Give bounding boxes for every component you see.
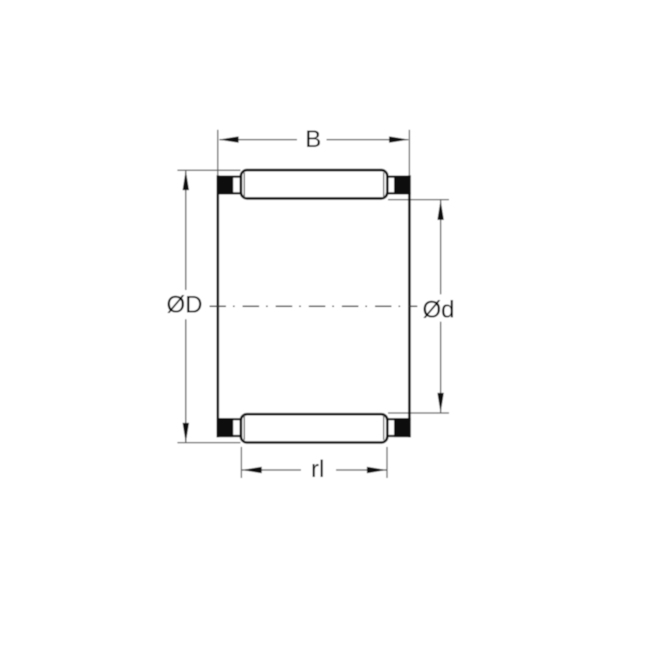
svg-text:Ød: Ød (422, 297, 454, 324)
svg-text:rl: rl (311, 456, 324, 483)
svg-text:ØD: ØD (167, 292, 203, 319)
svg-text:B: B (305, 126, 321, 153)
